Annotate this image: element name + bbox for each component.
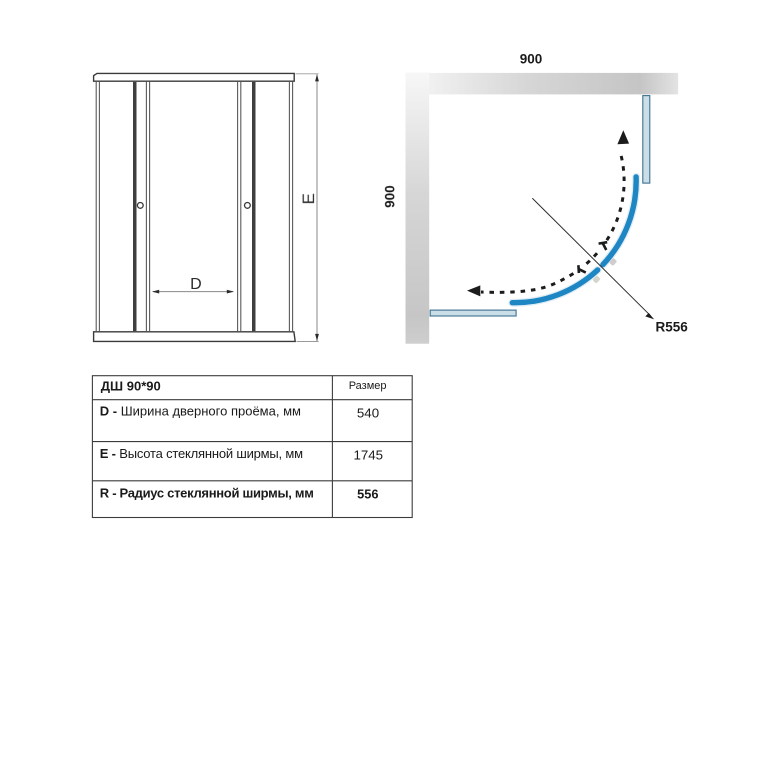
svg-text:1745: 1745 [354, 447, 384, 462]
svg-text:540: 540 [357, 406, 379, 421]
svg-text:R556: R556 [656, 320, 689, 335]
svg-text:ДШ 90*90: ДШ 90*90 [101, 378, 161, 393]
svg-text:R - Радиус стеклянной ширмы, м: R - Радиус стеклянной ширмы, мм [100, 486, 314, 501]
svg-text:Размер: Размер [349, 380, 387, 392]
svg-text:E: E [299, 193, 318, 204]
svg-text:D: D [190, 276, 202, 293]
svg-text:900: 900 [382, 185, 397, 208]
svg-text:900: 900 [520, 52, 543, 67]
svg-text:E - Высота стеклянной ширмы, м: E - Высота стеклянной ширмы, мм [100, 446, 303, 461]
svg-text:556: 556 [357, 487, 378, 502]
svg-text:D - Ширина дверного проёма, мм: D - Ширина дверного проёма, мм [100, 403, 301, 418]
